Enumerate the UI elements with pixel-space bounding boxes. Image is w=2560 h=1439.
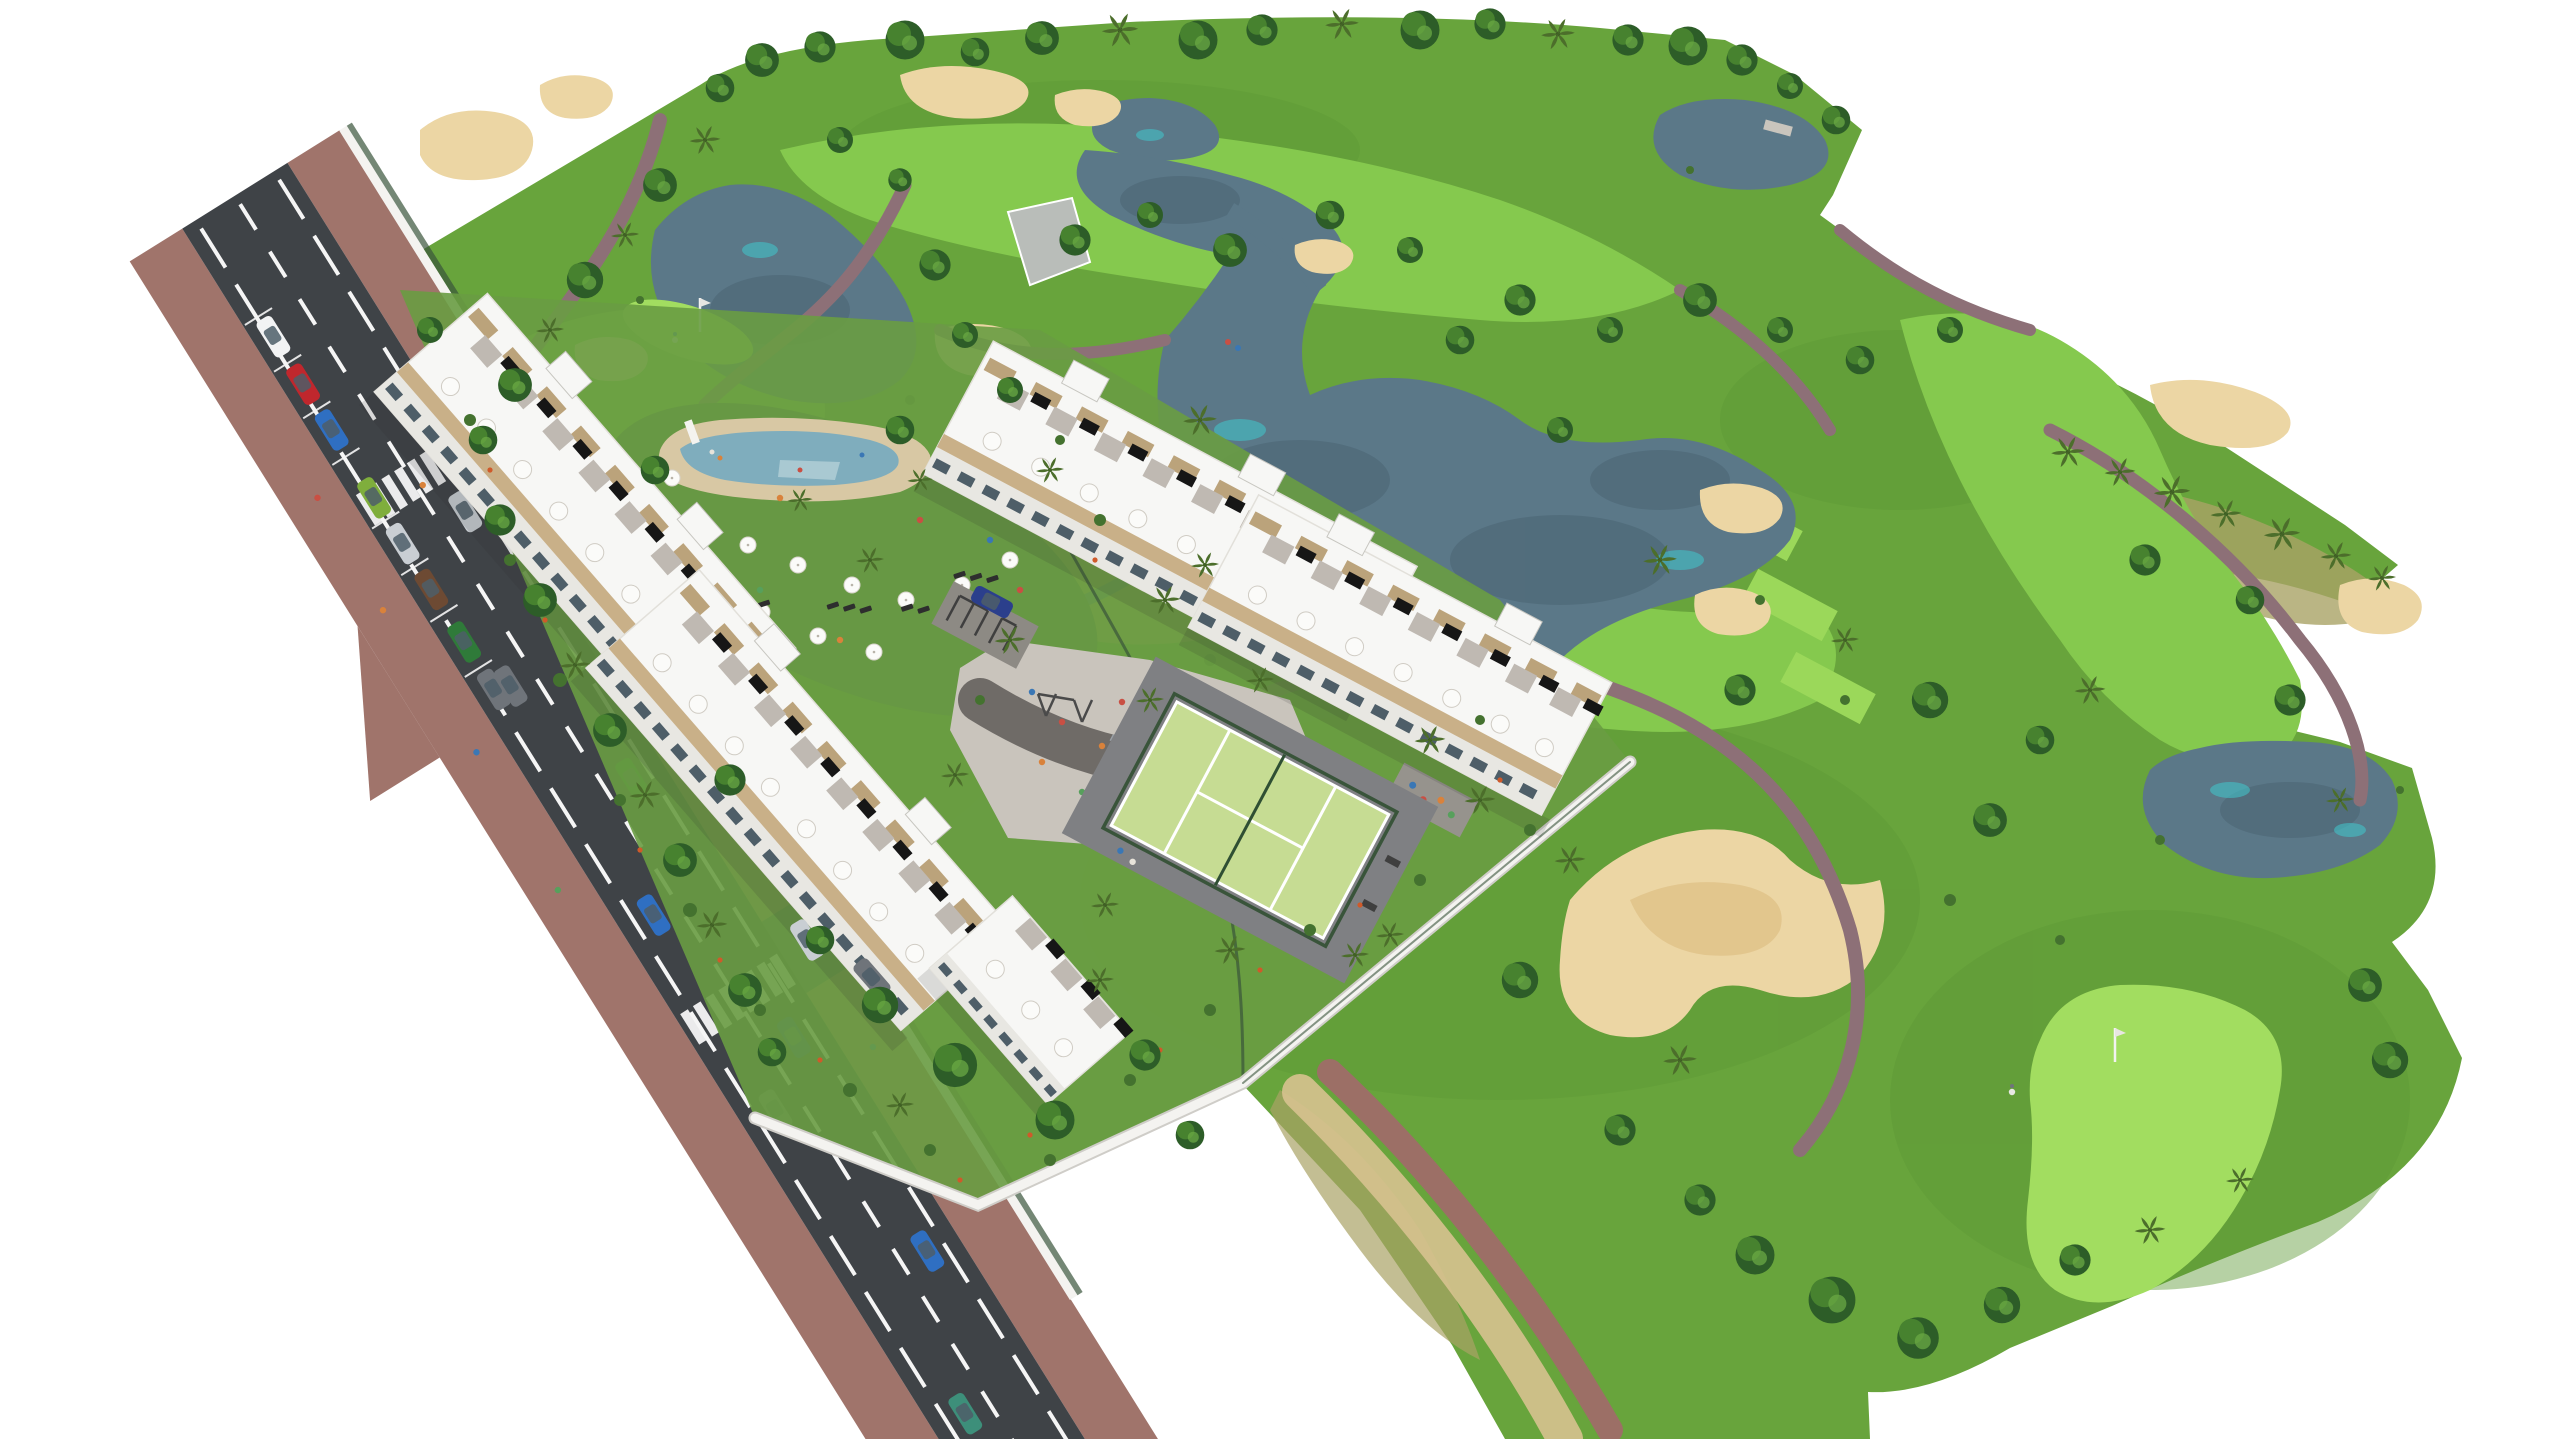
pool-steps [778, 460, 840, 480]
rendering-canvas [0, 0, 2560, 1439]
golfer-2 [2009, 1089, 2015, 1095]
aerial-rendering [0, 0, 2560, 1439]
